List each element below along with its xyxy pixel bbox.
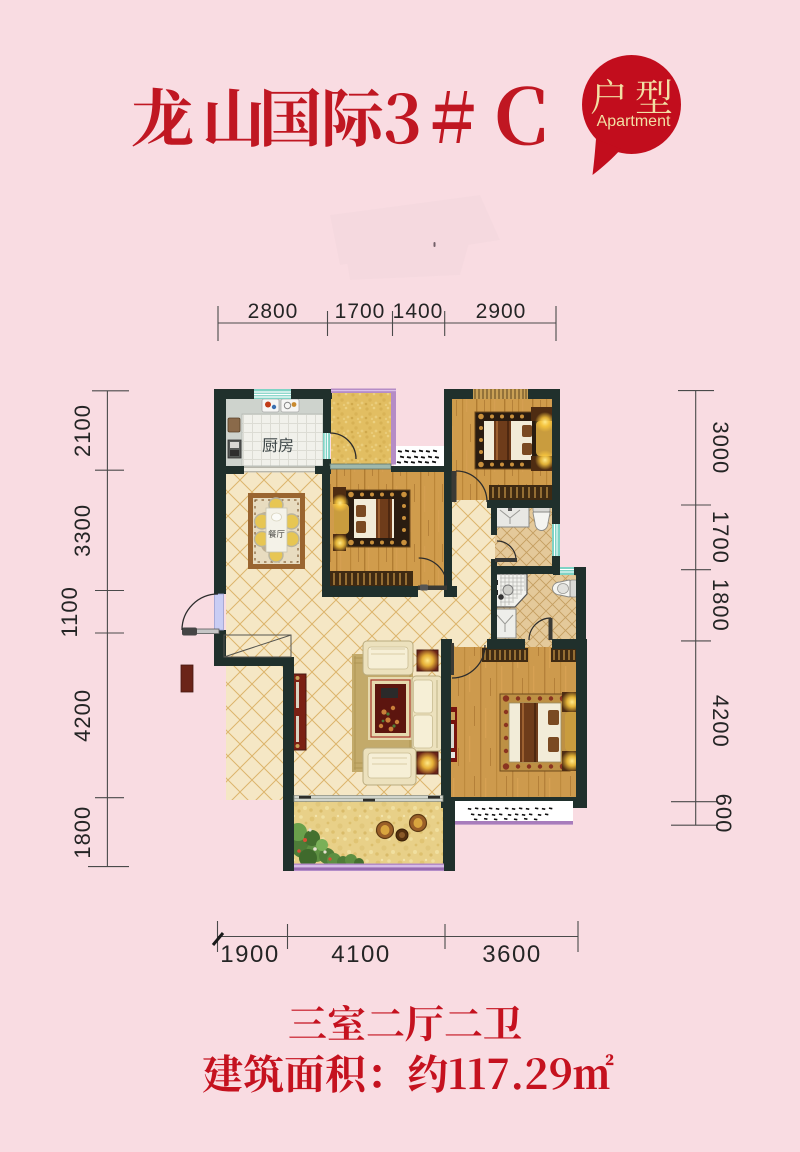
svg-text:2100: 2100 xyxy=(70,404,95,457)
svg-text:1700: 1700 xyxy=(708,511,733,564)
svg-text:1400: 1400 xyxy=(393,300,444,323)
svg-text:2900: 2900 xyxy=(476,300,527,323)
svg-text:3600: 3600 xyxy=(482,941,541,968)
svg-text:1900: 1900 xyxy=(220,941,279,968)
svg-text:Apartment: Apartment xyxy=(597,113,671,130)
svg-text:4200: 4200 xyxy=(70,689,95,742)
svg-text:600: 600 xyxy=(711,794,736,834)
svg-text:1100: 1100 xyxy=(57,586,82,637)
svg-text:3000: 3000 xyxy=(708,421,733,474)
svg-text:4100: 4100 xyxy=(331,941,390,968)
svg-text:1800: 1800 xyxy=(708,579,733,632)
svg-text:4200: 4200 xyxy=(708,695,733,748)
svg-text:1800: 1800 xyxy=(70,806,95,859)
svg-text:2800: 2800 xyxy=(248,300,299,323)
svg-text:1700: 1700 xyxy=(335,300,386,323)
svg-text:3300: 3300 xyxy=(70,504,95,557)
